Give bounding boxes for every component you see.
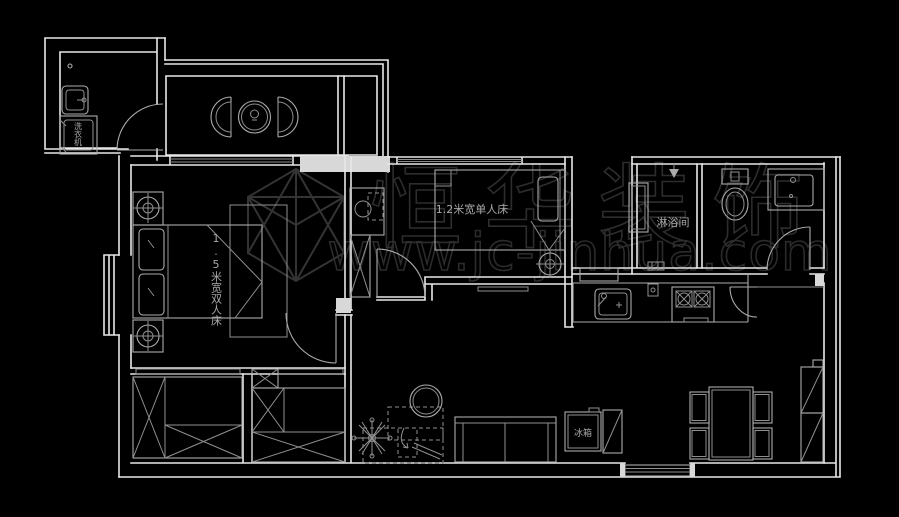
nightstand-bottom: [133, 320, 163, 352]
nightstand-top: [133, 192, 163, 225]
washing-machine-label: 洗衣机: [74, 121, 83, 147]
master-bedroom: 1.5米宽双人床: [133, 192, 352, 363]
master-bed-label: 1.5米宽双人床: [210, 232, 223, 327]
kitchen-door: [730, 287, 824, 317]
wardrobe-right: [252, 388, 345, 462]
stove: [672, 287, 714, 322]
lounge-chair-right: [278, 97, 298, 137]
dining-table: [690, 387, 772, 460]
tall-cabinet: [801, 360, 823, 462]
floor-plan: 恒华装饰 www.jc-jinhua.com: [0, 0, 899, 517]
laundry-sink: [62, 86, 88, 114]
fridge: 冰箱: [565, 408, 601, 451]
plant: [352, 418, 392, 458]
tv-shelf: [478, 287, 528, 291]
shower-room-label: 淋浴间: [657, 216, 690, 229]
round-stool: [410, 385, 442, 417]
gas-meter-box: [648, 284, 658, 296]
drain-symbol: [68, 64, 72, 68]
balcony-table: [239, 101, 271, 133]
sofa: [455, 417, 556, 462]
desk-chair: [355, 201, 371, 217]
utility-room: 洗衣机: [60, 64, 163, 154]
lounge-chair-left: [211, 97, 231, 137]
shoe-cabinet: [603, 410, 622, 453]
utility-door: [117, 104, 163, 150]
balcony: [211, 97, 298, 137]
single-bed-label: 1.2米宽单人床: [436, 202, 509, 216]
pillow: [139, 274, 164, 315]
kitchen-sink: [595, 289, 631, 319]
master-bedroom-door: [286, 298, 352, 363]
pillow: [139, 229, 164, 270]
living-dining: 冰箱: [352, 360, 823, 477]
entry-window: [620, 463, 695, 477]
floor-plan-drawing: 恒华装饰 www.jc-jinhua.com: [0, 0, 899, 517]
fridge-label: 冰箱: [574, 427, 592, 439]
closet-zone: [131, 368, 345, 462]
wardrobe-left: [133, 377, 242, 458]
